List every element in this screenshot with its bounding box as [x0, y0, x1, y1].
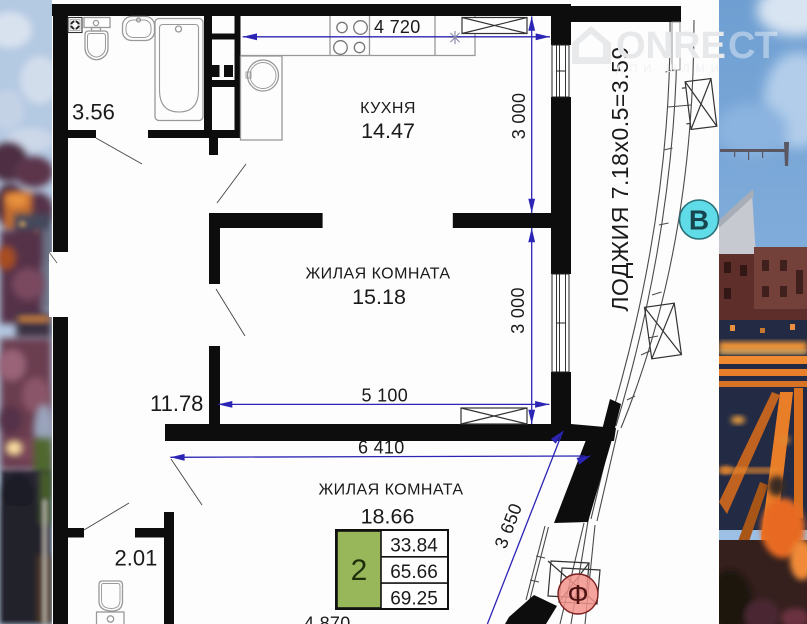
svg-text:ONRE: ONRE: [616, 25, 726, 67]
svg-text:3 000: 3 000: [509, 93, 529, 140]
svg-text:Ф: Ф: [567, 579, 588, 610]
svg-text:3.56: 3.56: [72, 100, 115, 125]
svg-text:2.01: 2.01: [115, 546, 158, 571]
svg-text:ЛОДЖИЯ 7.18х0.5=3.59: ЛОДЖИЯ 7.18х0.5=3.59: [607, 46, 633, 311]
svg-text:СТ: СТ: [728, 25, 778, 67]
svg-text:ДПИ ШЛМИ: ДПИ ШЛМИ: [616, 63, 725, 75]
svg-text:65.66: 65.66: [390, 562, 438, 583]
svg-text:6 410: 6 410: [358, 438, 405, 458]
svg-text:ЖИЛАЯ КОМНАТА: ЖИЛАЯ КОМНАТА: [305, 266, 450, 283]
svg-text:В: В: [689, 205, 709, 236]
svg-text:4 720: 4 720: [374, 17, 421, 37]
svg-text:11.78: 11.78: [150, 391, 203, 416]
svg-text:5 100: 5 100: [362, 386, 409, 406]
svg-text:3 000: 3 000: [508, 287, 528, 334]
svg-text:14.47: 14.47: [361, 119, 415, 143]
svg-text:15.18: 15.18: [352, 285, 406, 309]
svg-text:4 870: 4 870: [304, 614, 351, 624]
svg-text:69.25: 69.25: [390, 589, 438, 610]
svg-text:КУХНЯ: КУХНЯ: [360, 100, 416, 117]
svg-text:33.84: 33.84: [390, 536, 438, 557]
svg-text:18.66: 18.66: [361, 505, 415, 529]
svg-text:2: 2: [351, 554, 368, 587]
svg-text:ЖИЛАЯ КОМНАТА: ЖИЛАЯ КОМНАТА: [318, 482, 463, 499]
